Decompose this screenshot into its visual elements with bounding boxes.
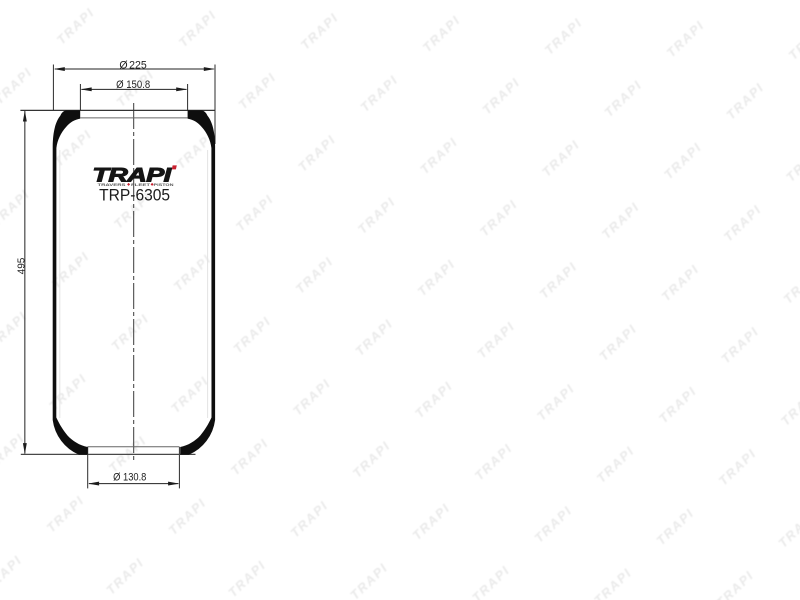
svg-text:Ø 130.8: Ø 130.8 (113, 472, 147, 484)
svg-text:Ø225: Ø225 (119, 59, 146, 71)
svg-text:Ø 150.8: Ø 150.8 (116, 80, 150, 92)
svg-text:495: 495 (16, 257, 27, 274)
svg-text:TRP-6305: TRP-6305 (99, 187, 170, 204)
